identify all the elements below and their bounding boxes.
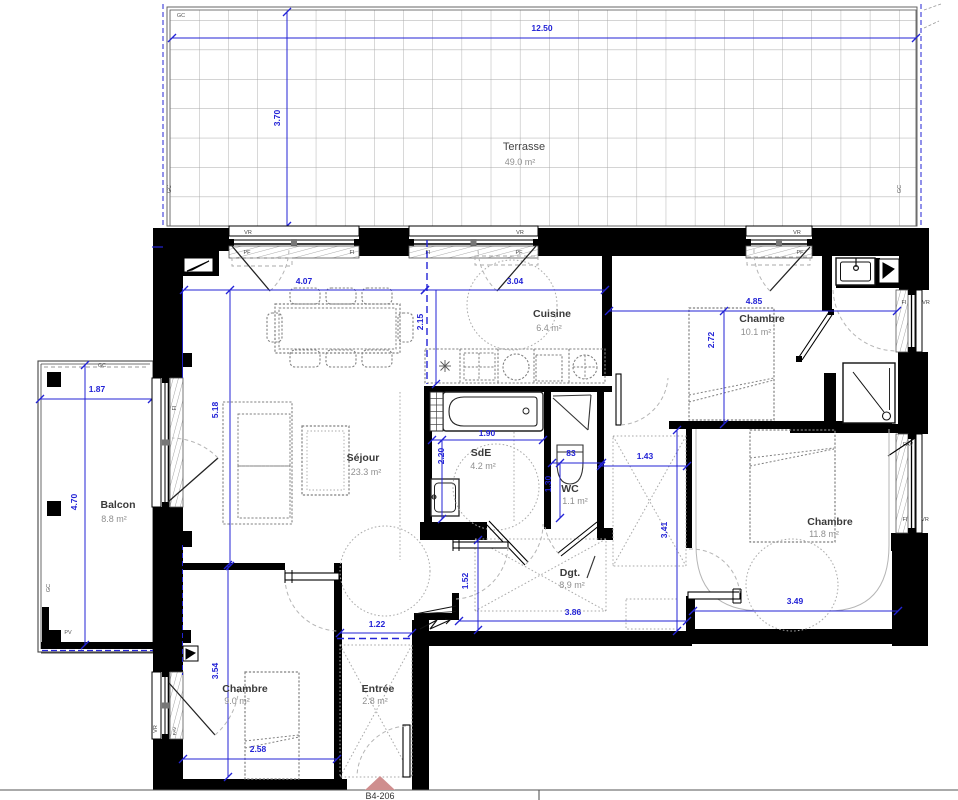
svg-text:VR: VR xyxy=(793,230,801,236)
svg-text:VR: VR xyxy=(921,517,929,523)
svg-text:3.41: 3.41 xyxy=(659,521,669,538)
svg-text:2.8 m²: 2.8 m² xyxy=(362,696,388,706)
svg-text:VR: VR xyxy=(244,230,252,236)
svg-text:12.50: 12.50 xyxy=(531,23,553,33)
svg-text:FI: FI xyxy=(903,517,908,523)
svg-text:1.1 m²: 1.1 m² xyxy=(562,496,588,506)
svg-text:1.22: 1.22 xyxy=(369,619,386,629)
svg-text:Terrasse: Terrasse xyxy=(503,141,545,153)
svg-text:VR: VR xyxy=(922,300,930,306)
svg-text:1.43: 1.43 xyxy=(637,451,654,461)
svg-text:4.07: 4.07 xyxy=(296,276,313,286)
svg-text:49.0 m²: 49.0 m² xyxy=(505,157,536,167)
svg-text:VR: VR xyxy=(516,230,524,236)
svg-text:Entrée: Entrée xyxy=(362,683,395,695)
svg-text:4.85: 4.85 xyxy=(746,296,763,306)
svg-text:4.70: 4.70 xyxy=(69,493,79,510)
svg-text:3.70: 3.70 xyxy=(272,109,282,126)
svg-text:9.0 m²: 9.0 m² xyxy=(224,696,250,706)
svg-text:5.18: 5.18 xyxy=(210,401,220,418)
svg-text:Séjour: Séjour xyxy=(347,452,380,464)
svg-text:Balcon: Balcon xyxy=(100,499,135,511)
svg-text:GC: GC xyxy=(98,363,106,369)
svg-text:1.52: 1.52 xyxy=(460,572,470,589)
svg-text:WC: WC xyxy=(561,483,579,495)
svg-text:GC: GC xyxy=(897,185,903,193)
svg-text:FAV: FAV xyxy=(172,726,178,736)
svg-text:Dgt.: Dgt. xyxy=(560,567,580,579)
svg-text:3.54: 3.54 xyxy=(210,662,220,679)
svg-text:VR: VR xyxy=(153,725,159,733)
svg-text:Chambre: Chambre xyxy=(807,516,853,528)
svg-text:10.1 m²: 10.1 m² xyxy=(741,327,772,337)
svg-text:3.86: 3.86 xyxy=(565,607,582,617)
svg-text:PF: PF xyxy=(515,250,523,256)
svg-text:2.58: 2.58 xyxy=(250,744,267,754)
svg-text:B4-206: B4-206 xyxy=(365,791,394,800)
svg-text:GC: GC xyxy=(167,185,173,193)
svg-text:1.87: 1.87 xyxy=(89,384,106,394)
svg-text:PF: PF xyxy=(243,250,251,256)
svg-text:FI: FI xyxy=(350,250,355,256)
svg-text:2.72: 2.72 xyxy=(706,331,716,348)
svg-text:8.9 m²: 8.9 m² xyxy=(559,580,585,590)
svg-text:Cuisine: Cuisine xyxy=(533,308,571,320)
svg-text:Chambre: Chambre xyxy=(739,313,785,325)
svg-text:PV: PV xyxy=(64,630,72,636)
svg-text:Chambre: Chambre xyxy=(222,683,268,695)
svg-text:FI: FI xyxy=(172,405,178,410)
svg-text:23.3 m²: 23.3 m² xyxy=(351,467,382,477)
svg-text:2.15: 2.15 xyxy=(415,313,425,330)
svg-text:8.8 m²: 8.8 m² xyxy=(101,514,127,524)
svg-text:FI: FI xyxy=(902,300,907,306)
svg-text:2.20: 2.20 xyxy=(436,447,446,464)
svg-text:3.04: 3.04 xyxy=(507,276,524,286)
svg-text:SdE: SdE xyxy=(471,447,491,459)
svg-text:GC: GC xyxy=(177,13,185,19)
svg-text:GC: GC xyxy=(46,584,52,592)
svg-text:83: 83 xyxy=(566,448,576,458)
svg-text:1.30: 1.30 xyxy=(543,475,553,492)
svg-text:1.90: 1.90 xyxy=(479,428,496,438)
svg-text:11.8 m²: 11.8 m² xyxy=(809,529,839,539)
svg-text:6.4 m²: 6.4 m² xyxy=(536,323,562,333)
svg-text:3.49: 3.49 xyxy=(787,596,804,606)
svg-text:4.2 m²: 4.2 m² xyxy=(470,461,496,471)
